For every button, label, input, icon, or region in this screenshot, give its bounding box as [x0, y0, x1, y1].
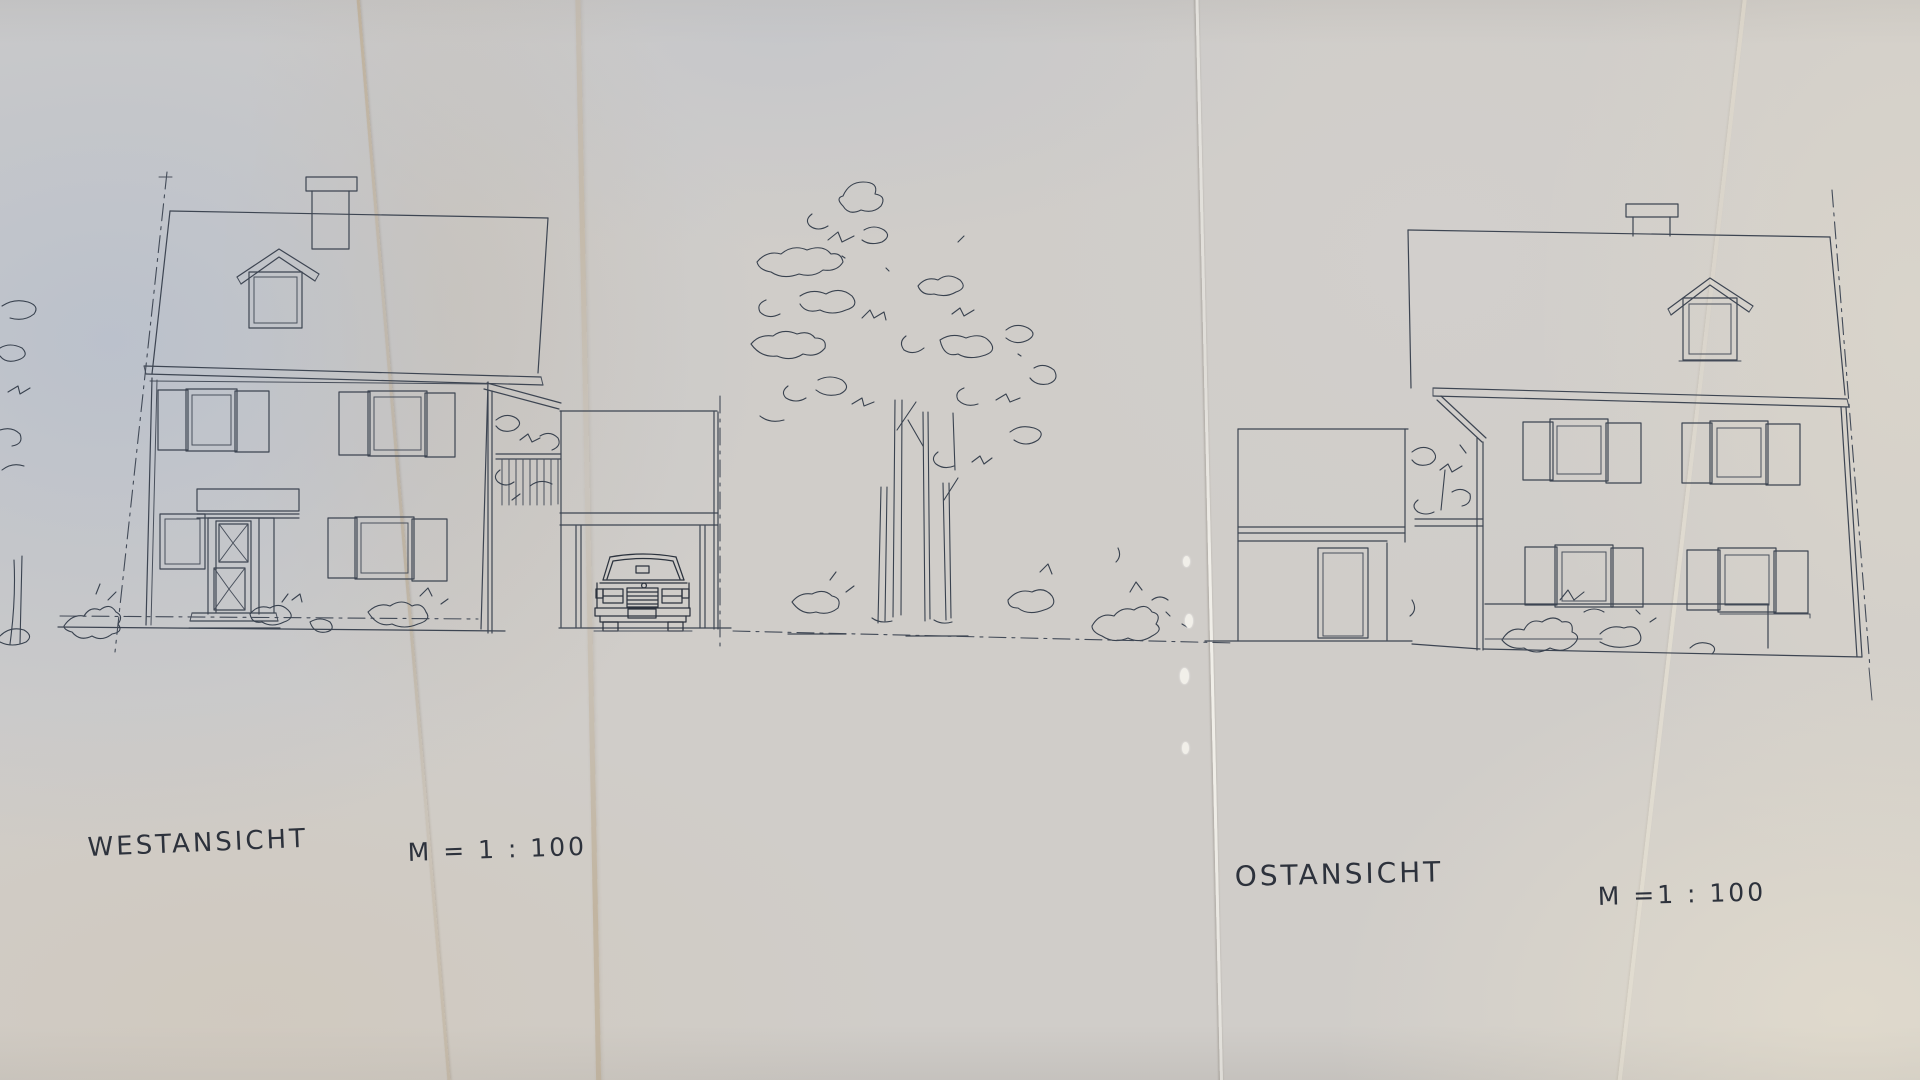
trees: [733, 182, 1235, 643]
blueprint-photo: WESTANSICHT M = 1 : 100 OSTANSICHT M =1 …: [0, 0, 1920, 1080]
west-elevation: [0, 172, 731, 652]
east-dormer-window: [1668, 278, 1753, 361]
east-window-upper-right: [1682, 421, 1800, 485]
middle-bushes: [792, 548, 1187, 641]
drawing-labels: WESTANSICHT M = 1 : 100 OSTANSICHT M =1 …: [87, 824, 1766, 911]
east-roof: [1408, 230, 1849, 442]
east-bushes: [1502, 590, 1715, 654]
east-chimney: [1626, 204, 1678, 236]
elevation-drawing-svg: WESTANSICHT M = 1 : 100 OSTANSICHT M =1 …: [0, 0, 1920, 1080]
west-window-upper-left: [158, 389, 269, 452]
east-window-lower-right: [1687, 548, 1808, 613]
middle-ground-line: [733, 631, 1235, 643]
fold-wear-spot: [1183, 556, 1190, 567]
railing-plants: [495, 415, 559, 500]
east-elevation: [1205, 190, 1872, 700]
tree-foliage: [751, 182, 1056, 468]
east-window-lower-left: [1525, 545, 1643, 607]
west-entrance-door: [160, 489, 299, 628]
west-elevation-scale: M = 1 : 100: [407, 832, 587, 867]
annex-garage: [1205, 429, 1483, 649]
east-facade: [1477, 407, 1862, 657]
west-window-upper-right: [339, 391, 455, 457]
fold-wear-spot: [1182, 742, 1189, 754]
east-plinth-and-ground: [1483, 604, 1862, 657]
east-boundary-line: [1832, 190, 1872, 700]
parked-car: [594, 554, 692, 631]
fold-wear-spot: [1185, 614, 1193, 628]
stair-railing: [484, 383, 561, 633]
west-chimney: [306, 177, 357, 249]
east-elevation-title: OSTANSICHT: [1234, 855, 1443, 893]
annex-climbing-plants: [1410, 445, 1470, 616]
west-elevation-title: WESTANSICHT: [87, 824, 309, 863]
west-roof: [144, 211, 548, 385]
west-boundary-line: [115, 172, 172, 652]
east-elevation-scale: M =1 : 100: [1597, 877, 1766, 911]
tree-trunks: [872, 400, 958, 623]
west-window-ground-right: [328, 517, 447, 581]
east-window-upper-left: [1523, 419, 1641, 483]
west-dormer-window: [237, 249, 319, 328]
edge-tree-left: [0, 301, 36, 645]
fold-wear-spot: [1180, 668, 1189, 684]
